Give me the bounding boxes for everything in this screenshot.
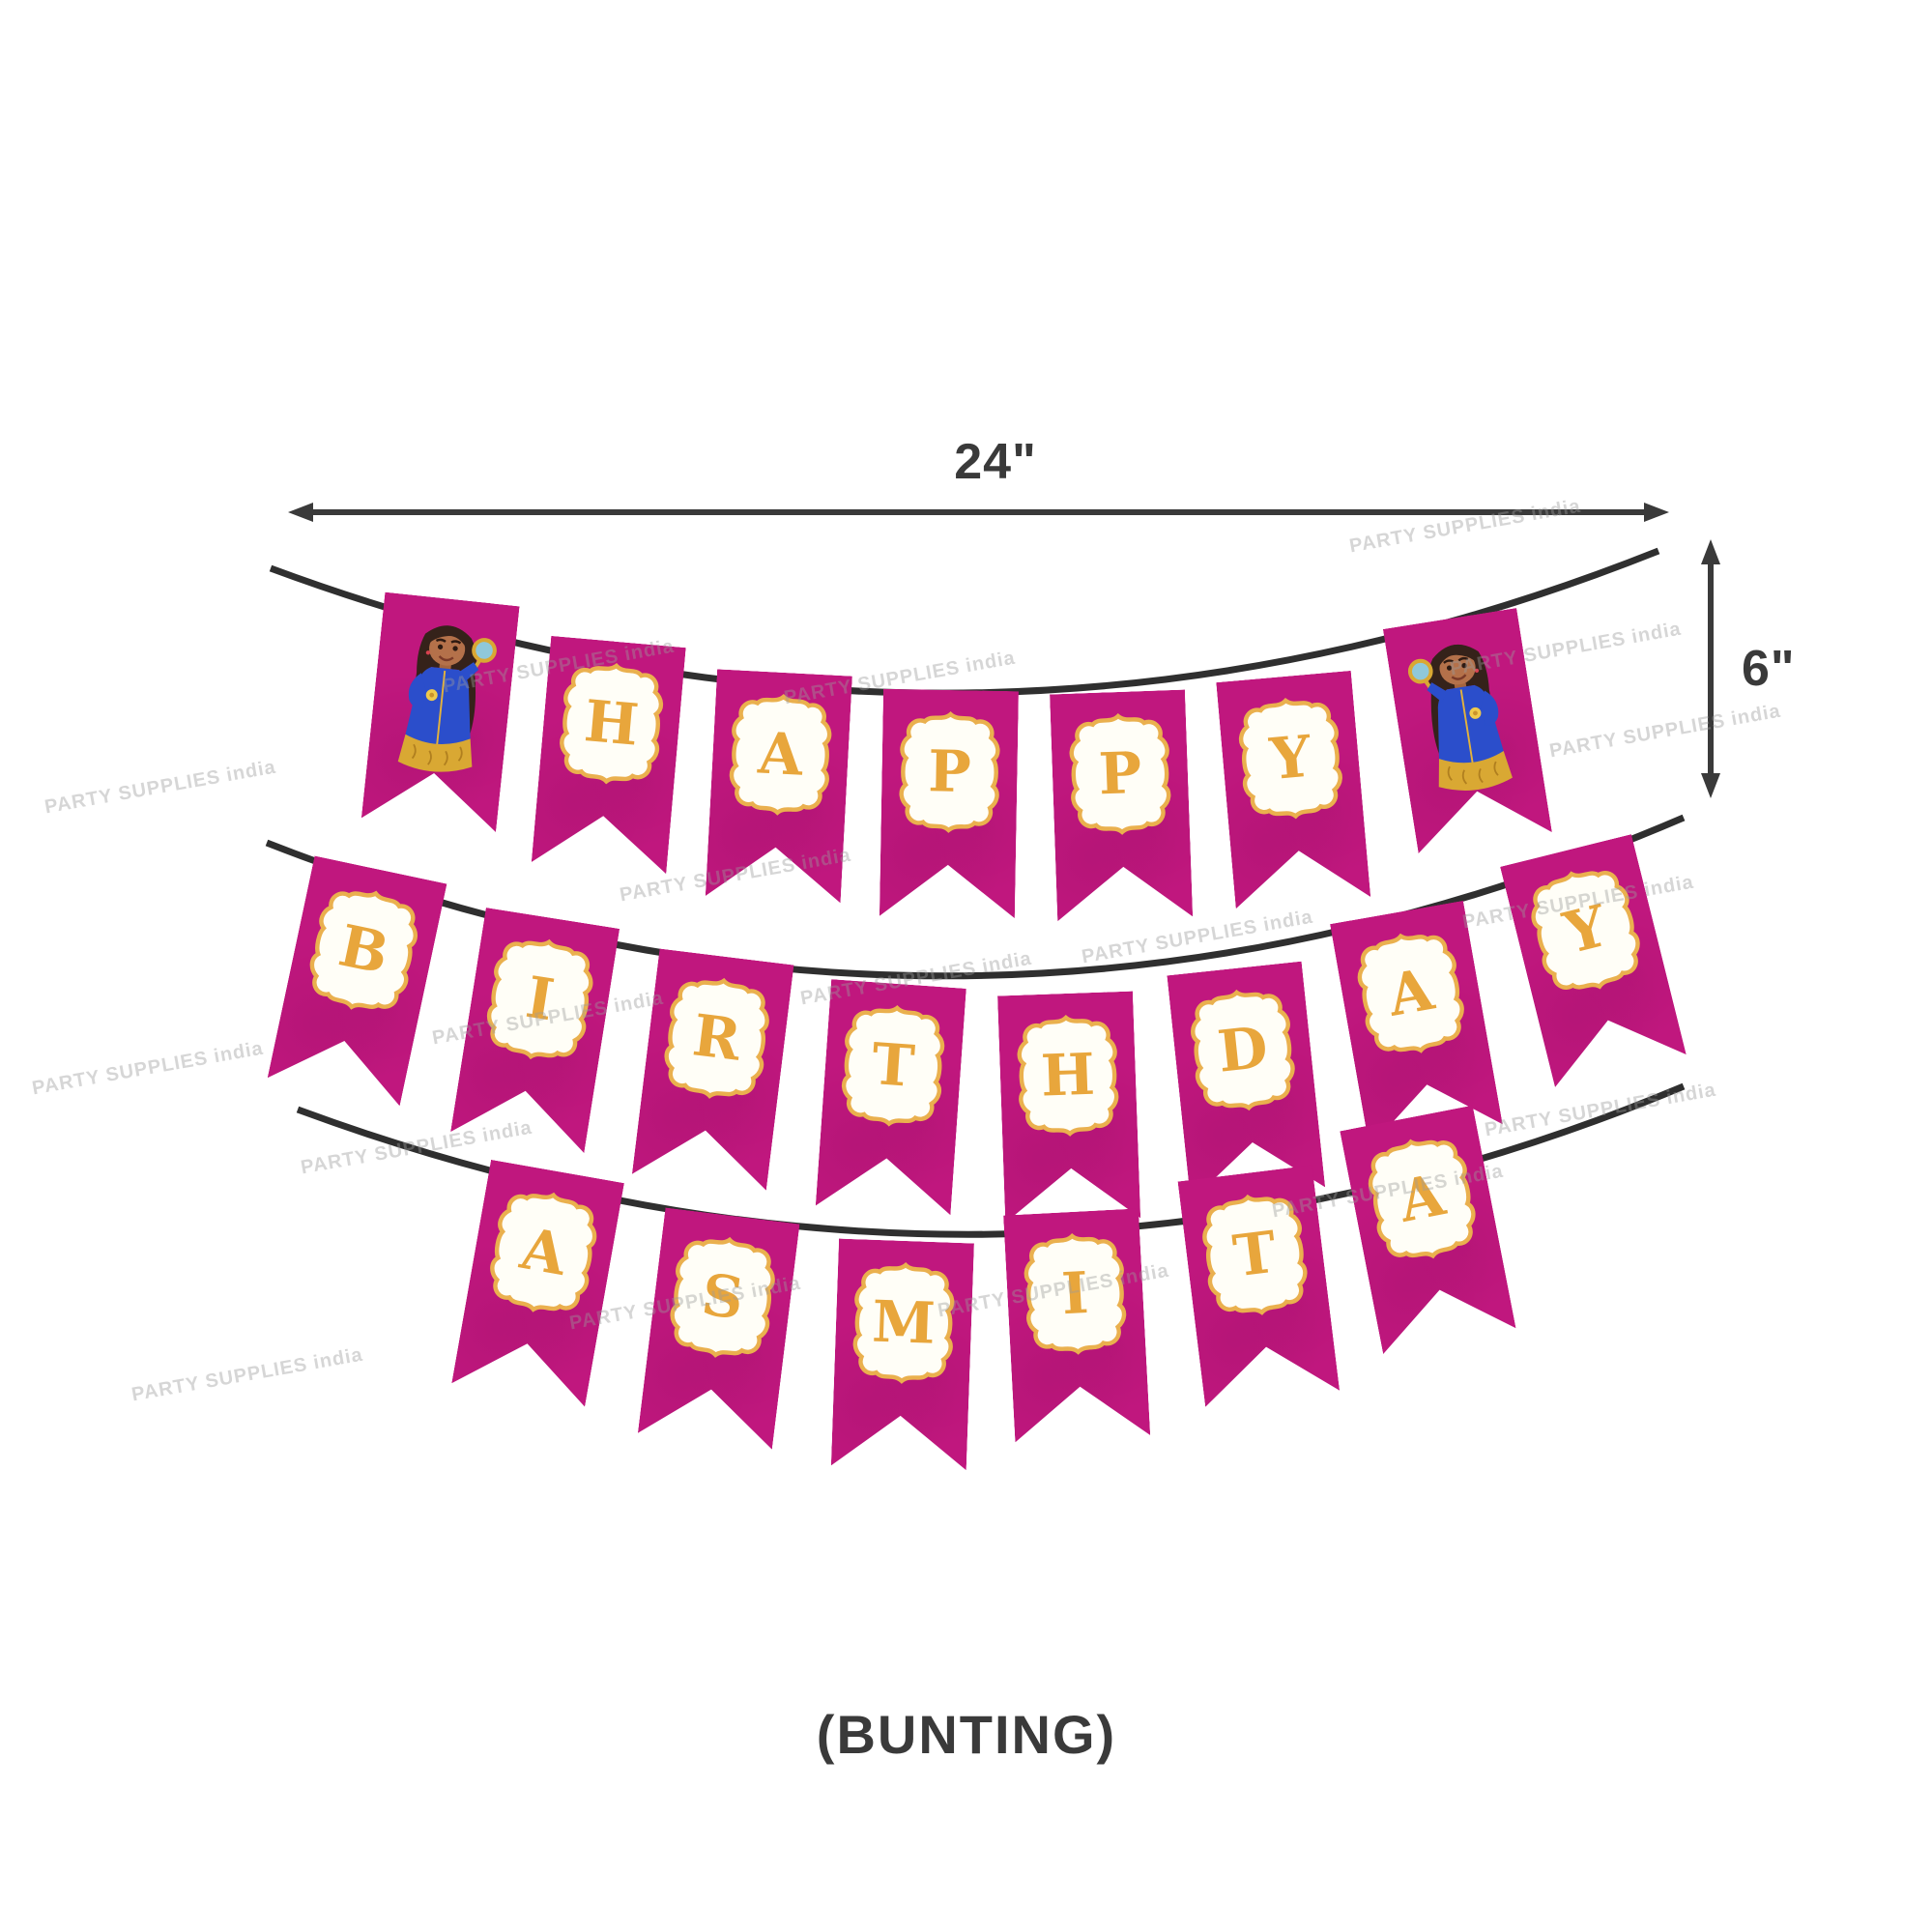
width-dimension-label: 24" <box>918 433 1073 491</box>
flag-letter-text: H <box>582 687 642 759</box>
flag-letter-text: P <box>1098 739 1143 808</box>
girl-detective-character-icon <box>374 605 508 801</box>
flag-letter-text: D <box>1215 1014 1271 1085</box>
flag-letter-text: T <box>1229 1219 1280 1290</box>
caption-bunting: (BUNTING) <box>677 1703 1256 1766</box>
flag-letter-text: Y <box>1266 723 1314 793</box>
flag-letter-text: T <box>870 1030 917 1100</box>
product-mockup-canvas: 24" 6" <box>0 0 1932 1932</box>
height-dimension-arrow <box>1701 539 1720 798</box>
flag-letter-text: R <box>689 1001 745 1074</box>
flag-letter-text: H <box>1040 1041 1096 1110</box>
flag-letter-text: A <box>756 719 806 788</box>
flag-letter-text: M <box>871 1287 937 1356</box>
height-dimension-label: 6" <box>1742 640 1848 698</box>
flag-letter-text: P <box>928 737 972 805</box>
